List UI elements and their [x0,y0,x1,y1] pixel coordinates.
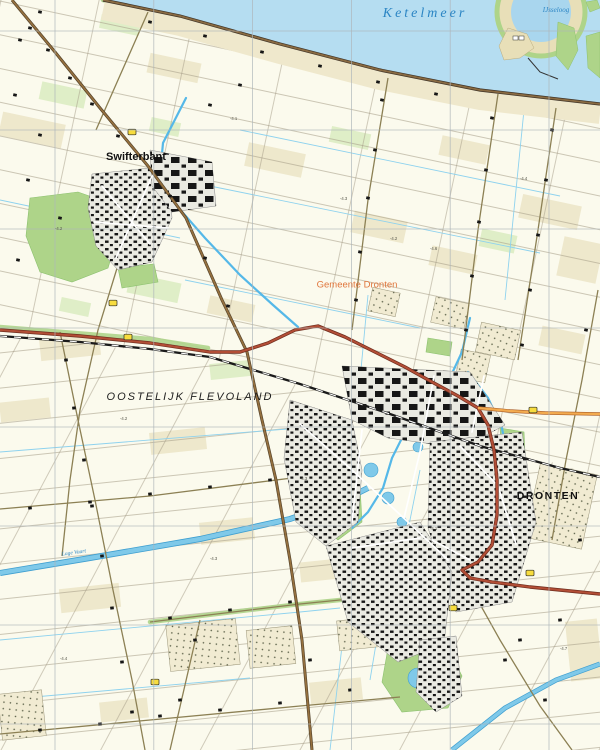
svg-text:-4.2: -4.2 [390,236,398,241]
svg-text:-4.3: -4.3 [210,556,218,561]
topographic-map: -4.2-4.1-4.3-4.6-4.4-4.2-4.3-4.1-4.7-4.4… [0,0,600,750]
svg-text:-4.2: -4.2 [120,416,128,421]
svg-text:-4.4: -4.4 [520,176,528,181]
svg-text:-4.3: -4.3 [300,476,308,481]
svg-text:-4.1: -4.1 [430,526,438,531]
svg-text:-4.3: -4.3 [340,196,348,201]
svg-text:-4.1: -4.1 [230,116,238,121]
map-canvas: -4.2-4.1-4.3-4.6-4.4-4.2-4.3-4.1-4.7-4.4… [0,0,600,750]
svg-text:-4.2: -4.2 [55,226,63,231]
svg-text:-4.4: -4.4 [60,656,68,661]
svg-text:-4.7: -4.7 [560,646,568,651]
svg-text:-4.6: -4.6 [430,246,438,251]
